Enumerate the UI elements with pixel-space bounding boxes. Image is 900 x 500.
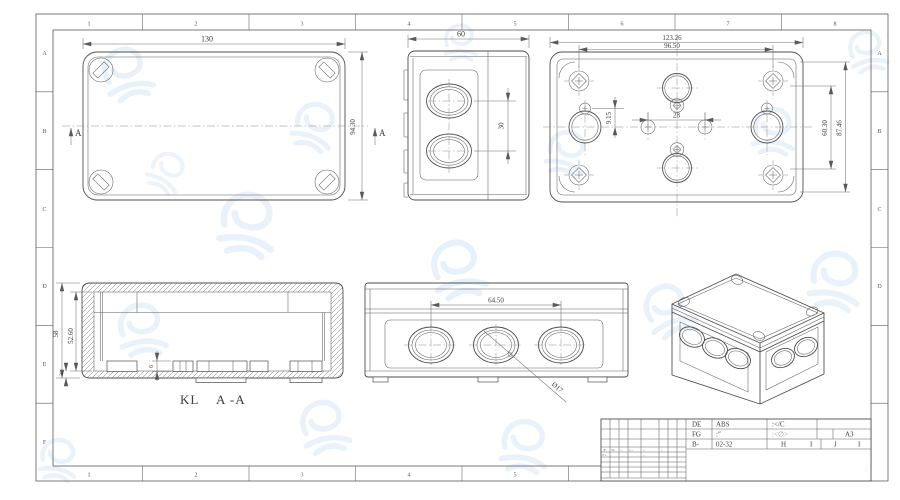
dimension-rim: 3 <box>59 363 66 386</box>
dimension-center-spacing: 28 <box>632 112 721 125</box>
view-isometric <box>672 274 824 404</box>
field-value: :<∅> <box>772 431 788 439</box>
field-label: FG <box>692 431 701 439</box>
zone-label: A <box>42 51 47 57</box>
dim-text: 130 <box>201 35 213 44</box>
zone-label: C <box>877 207 881 213</box>
dim-text: 52.60 <box>67 328 75 344</box>
watermark-pattern <box>38 25 889 482</box>
field-letter: J <box>834 441 837 449</box>
dim-text: 9.15 <box>605 111 613 124</box>
zone-label: B <box>42 129 46 135</box>
view-front: 64.50 Ø17 <box>365 283 628 402</box>
dim-text: 28 <box>673 112 681 120</box>
revision-mark: -E <box>603 448 606 452</box>
section-name: A -A <box>216 392 246 407</box>
zone-label: 3 <box>301 22 304 28</box>
field-value: :</C <box>772 421 785 429</box>
leader-diameter: Ø17 <box>484 331 566 402</box>
dim-text: Ø17 <box>550 381 565 395</box>
revision-mark: 01 <box>603 453 607 457</box>
zone-label: 5 <box>514 473 517 479</box>
zone-label: B <box>877 129 881 135</box>
zone-label: 1 <box>88 473 91 479</box>
sheet-format: A3 <box>845 431 854 439</box>
dimension-width: 60 <box>408 30 529 49</box>
zone-label: 4 <box>408 473 411 479</box>
zone-label: 5 <box>514 22 517 28</box>
feet <box>373 377 607 382</box>
dim-text: 96.50 <box>664 42 680 50</box>
zone-label: 8 <box>834 22 837 28</box>
section-cut-marks: A A <box>71 128 386 145</box>
zone-label: 6 <box>621 22 624 28</box>
zone-label: C <box>42 207 46 213</box>
zone-label: 4 <box>408 22 411 28</box>
lid-corner-bosses <box>677 274 819 342</box>
sheet-frame: 1 2 3 4 5 6 7 8 1 2 3 4 5 A B C D E F A … <box>36 14 888 481</box>
dim-text: 94.30 <box>349 119 357 135</box>
engineering-drawing-sheet: 1 2 3 4 5 6 7 8 1 2 3 4 5 A B C D E F A … <box>0 0 900 500</box>
drawing-canvas: 1 2 3 4 5 6 7 8 1 2 3 4 5 A B C D E F A … <box>0 0 900 500</box>
drawing-number: 02-32 <box>716 441 733 449</box>
dim-text: 6 <box>149 365 155 368</box>
revision-mark: · <box>603 468 604 472</box>
zone-label: D <box>877 284 882 290</box>
view-top-plan: 130 94.30 A A <box>62 35 386 201</box>
section-letter: A <box>379 128 386 138</box>
zone-label: 3 <box>301 473 304 479</box>
dim-text: 30 <box>498 122 506 130</box>
view-bottom: 123.26 96.50 60.30 87.46 9.15 <box>543 34 850 219</box>
zone-label: A <box>877 51 882 57</box>
field-letter: H <box>781 441 786 449</box>
dimension-offset: 9.15 <box>592 97 624 138</box>
section-letter: A <box>75 128 82 138</box>
zone-label: 7 <box>727 22 730 28</box>
dimension-spacing: 64.50 <box>431 297 561 329</box>
zone-label: 2 <box>195 22 198 28</box>
dimension-heights: 60.30 87.46 <box>790 62 850 192</box>
view-side: 60 30 <box>404 30 529 201</box>
material-value: ABS <box>716 421 730 429</box>
section-label: KL <box>180 392 199 407</box>
zone-label: D <box>42 284 47 290</box>
dim-text: 87.46 <box>836 120 844 136</box>
title-block: -E N- :- (-- /- | 01 -- · · DE ABS :</C … <box>601 419 871 481</box>
dim-text: 60 <box>457 30 465 39</box>
field-label: B- <box>692 441 700 449</box>
field-label: DE <box>692 421 701 429</box>
dimension-screw-width: 96.50 <box>579 42 773 68</box>
dim-text: 60.30 <box>821 120 829 136</box>
zone-label: 1 <box>88 22 91 28</box>
dim-text: 3 <box>59 373 65 376</box>
keyhole-bottom <box>663 143 692 183</box>
dim-text: 58 <box>52 330 60 338</box>
field-value: :″ <box>716 431 721 439</box>
dim-text: 64.50 <box>488 297 504 305</box>
revision-mark: · <box>640 473 641 477</box>
zone-label: E <box>43 362 47 368</box>
dimension-spacing: 30 <box>474 88 516 164</box>
zone-label: 2 <box>195 473 198 479</box>
view-section: 58 52.60 3 6 KL A -A <box>52 283 343 407</box>
dim-text: 123.26 <box>662 34 682 42</box>
